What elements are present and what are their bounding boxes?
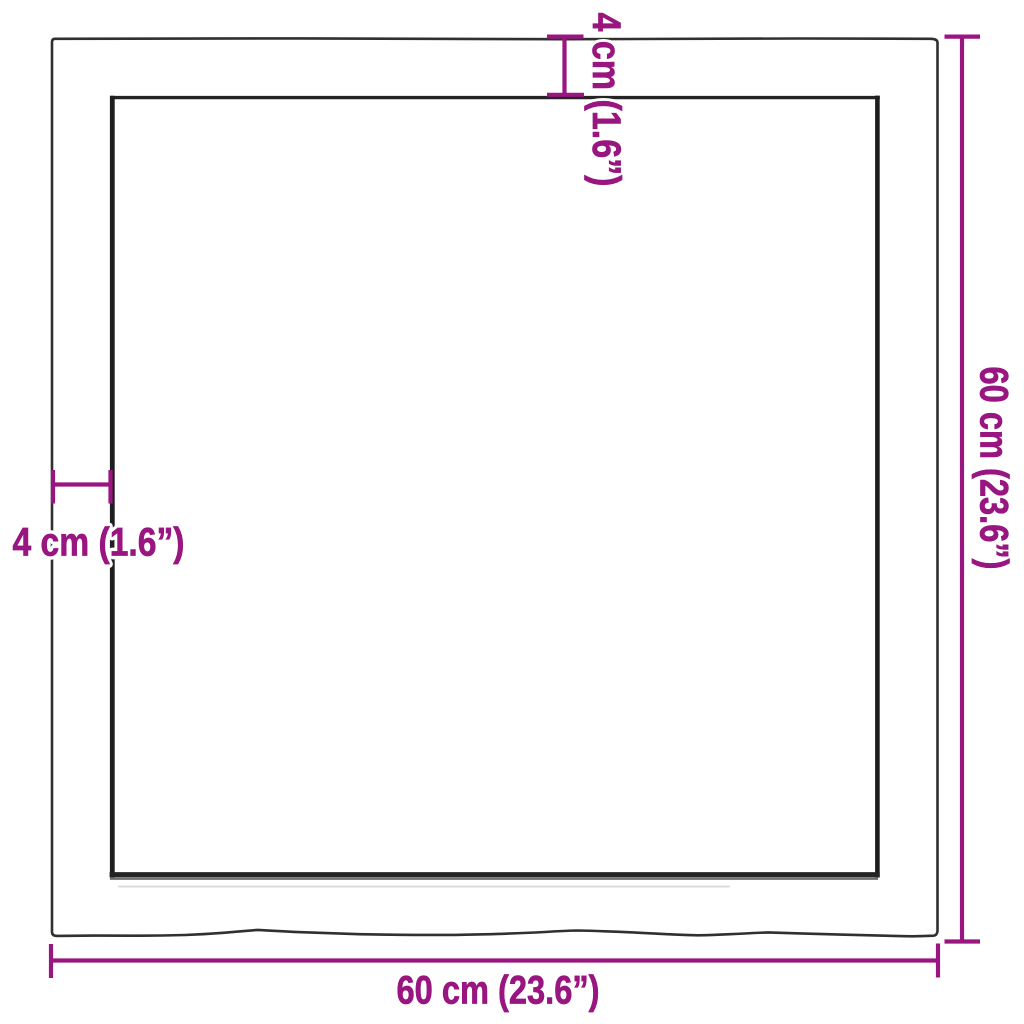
svg-text:4 cm (1.6”): 4 cm (1.6”) <box>584 13 628 187</box>
svg-text:60 cm (23.6”): 60 cm (23.6”) <box>397 969 600 1013</box>
svg-text:60 cm (23.6”): 60 cm (23.6”) <box>972 367 1016 570</box>
svg-text:4 cm (1.6”): 4 cm (1.6”) <box>13 521 185 565</box>
